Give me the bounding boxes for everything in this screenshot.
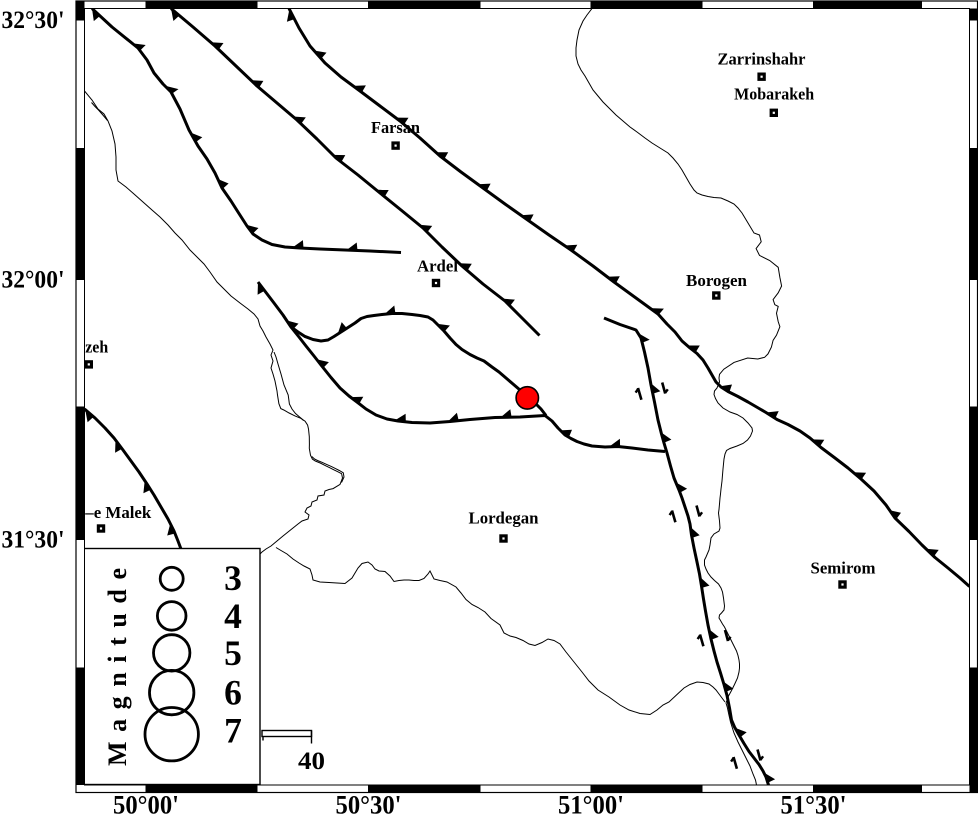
svg-text:50°30': 50°30' [336,791,402,820]
svg-text:Zarrinshahr: Zarrinshahr [718,50,806,69]
svg-text:Semirom: Semirom [811,559,876,578]
svg-text:Borogen: Borogen [686,271,748,290]
svg-text:5: 5 [224,633,242,673]
svg-text:3: 3 [224,558,242,598]
svg-text:zeh: zeh [85,337,109,356]
svg-text:50°00': 50°00' [113,791,179,820]
svg-text:31°30': 31°30' [2,527,65,554]
svg-text:51°30': 51°30' [781,791,847,820]
svg-text:Farsan: Farsan [371,118,421,137]
svg-text:4: 4 [224,596,242,636]
svg-text:7: 7 [224,711,242,751]
svg-text:6: 6 [224,673,242,713]
svg-text:M a g n i t u d e: M a g n i t u d e [103,568,132,766]
svg-text:32°00': 32°00' [2,267,65,294]
svg-text:Ardel: Ardel [417,257,458,276]
svg-text:51°00': 51°00' [558,791,624,820]
svg-text:Lordegan: Lordegan [469,509,540,528]
svg-text:40: 40 [298,748,325,775]
svg-text:–e Malek: –e Malek [84,503,152,522]
svg-text:32°30': 32°30' [2,7,65,34]
svg-text:Mobarakeh: Mobarakeh [734,85,815,104]
